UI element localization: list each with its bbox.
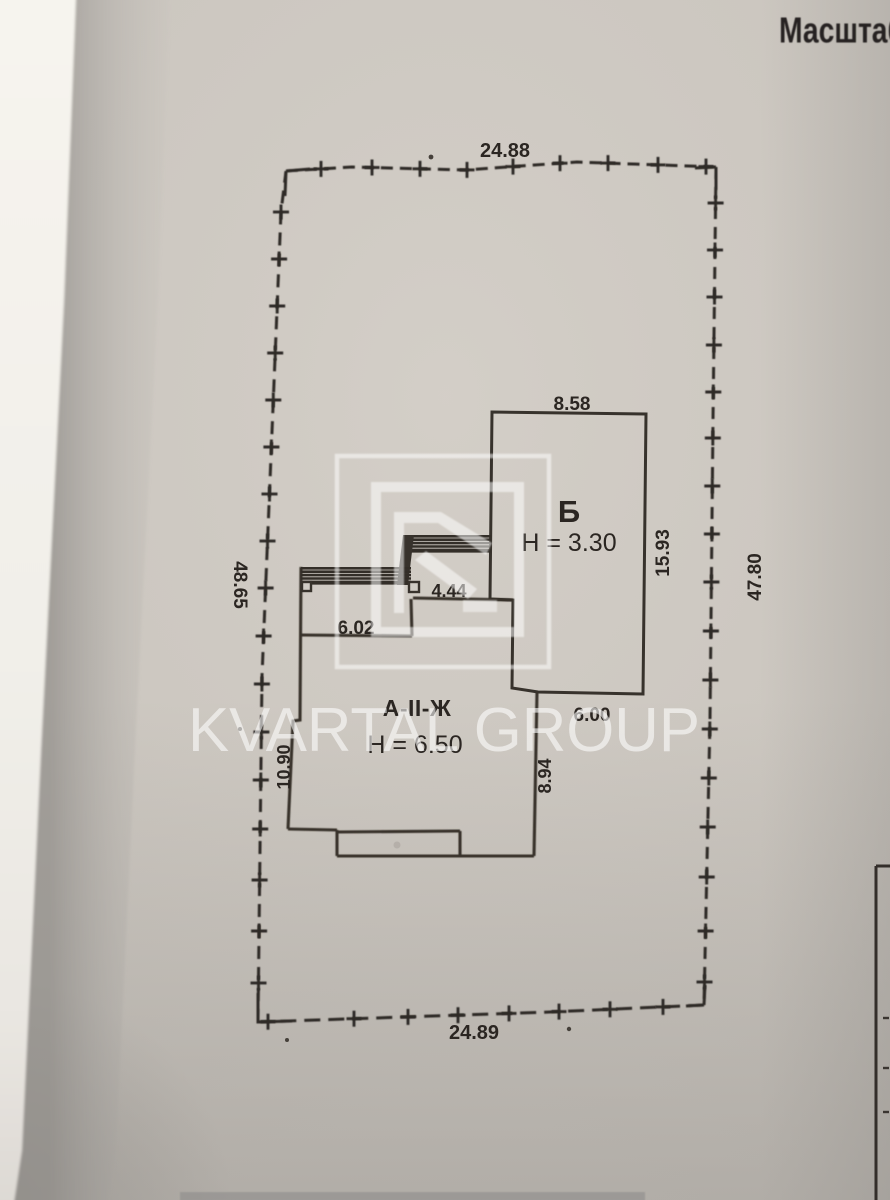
svg-text:KVARTAL GROUP: KVARTAL GROUP: [188, 696, 700, 765]
svg-text:24.89: 24.89: [449, 1022, 499, 1044]
svg-text:47.80: 47.80: [745, 553, 766, 601]
svg-text:8.58: 8.58: [554, 394, 591, 415]
svg-text:24.88: 24.88: [480, 140, 530, 162]
svg-text:15.93: 15.93: [653, 529, 674, 577]
svg-text:48.65: 48.65: [229, 561, 250, 609]
svg-text:6.02: 6.02: [338, 618, 375, 639]
svg-text:Н = 3.30: Н = 3.30: [521, 529, 616, 557]
svg-text:Б: Б: [558, 494, 580, 529]
svg-text:Масштаб: Масштаб: [779, 10, 890, 51]
